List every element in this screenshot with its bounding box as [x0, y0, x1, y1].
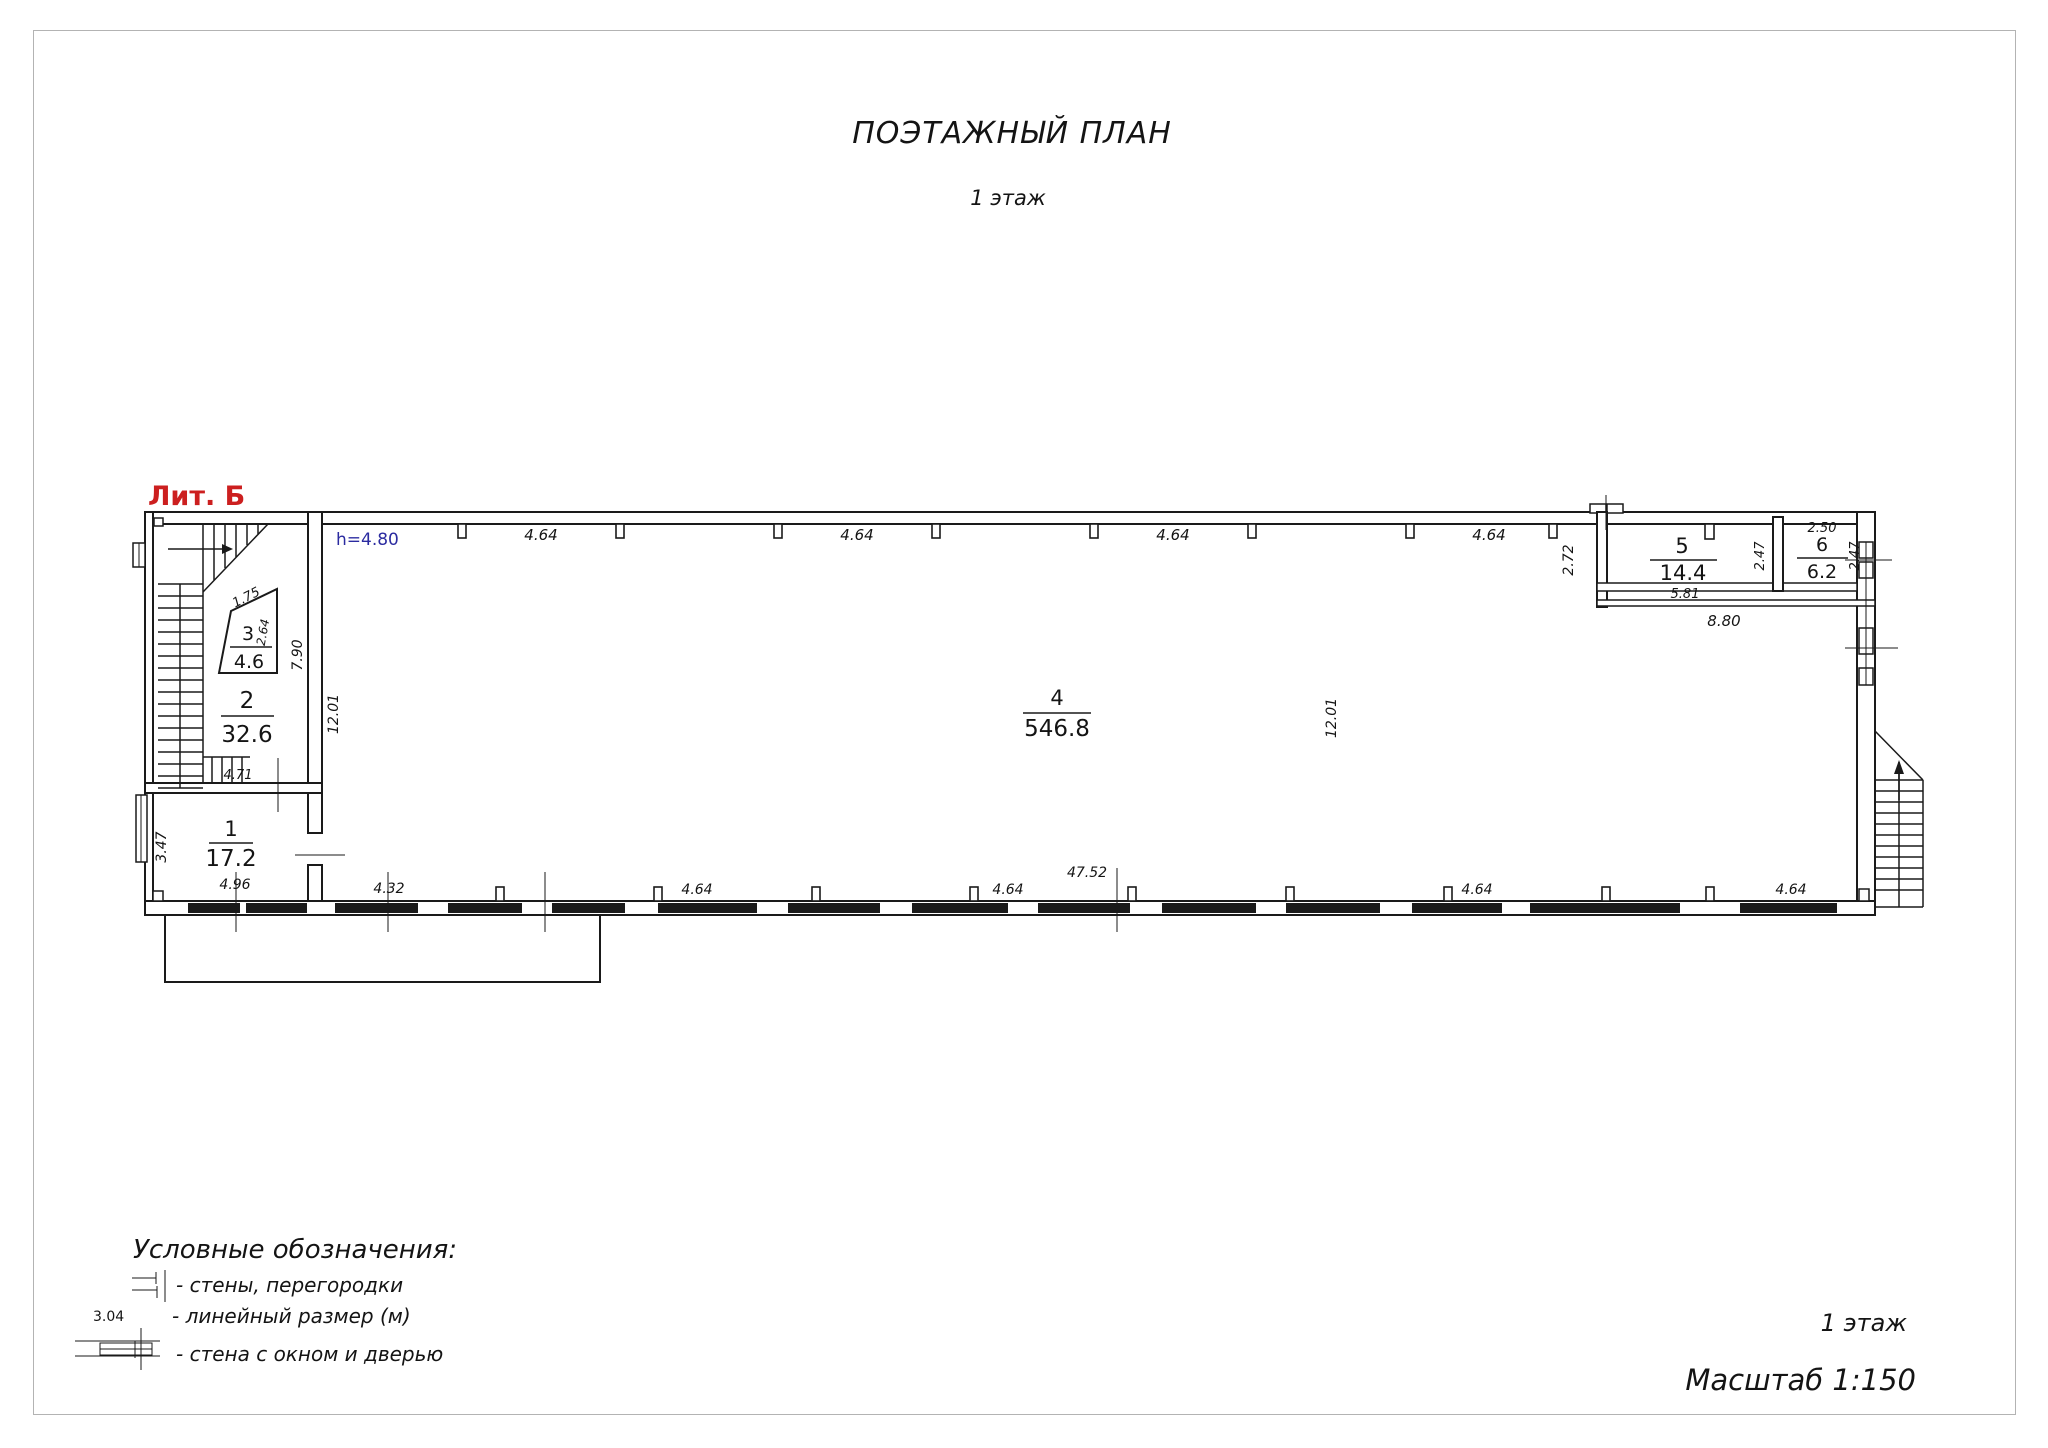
- dim-top-2: 4.64: [840, 526, 873, 544]
- ceiling-height-note: h=4.80: [336, 530, 399, 550]
- page-title: ПОЭТАЖНЫЙ ПЛАН: [852, 115, 1172, 151]
- room-5-area: 14.4: [1660, 561, 1707, 585]
- porch-outline: [165, 915, 600, 982]
- room-3-number: 3: [242, 623, 254, 645]
- stair-up-arrow: [222, 544, 233, 554]
- dim-annex-width: 8.80: [1707, 612, 1740, 630]
- footer-scale: Масштаб 1:150: [1685, 1363, 1916, 1397]
- page: { "page": { "title": "ПОЭТАЖНЫЙ ПЛАН", "…: [0, 0, 2048, 1448]
- dim-top-1: 4.64: [524, 526, 557, 544]
- wall-top-notch: [1607, 504, 1623, 513]
- room-1-area: 17.2: [205, 846, 256, 872]
- dim-room1-height: 3.47: [154, 831, 170, 862]
- wall-annex-hallside: [1597, 600, 1875, 606]
- liter-label: Лит. Б: [148, 481, 245, 512]
- room-2-area: 32.6: [221, 722, 272, 748]
- room-2-number: 2: [240, 688, 255, 714]
- dim-top-4: 4.64: [1472, 526, 1505, 544]
- dim-top-3: 4.64: [1156, 526, 1189, 544]
- dim-room2-width: 4.71: [224, 768, 253, 783]
- legend-size-sample: 3.04: [93, 1309, 124, 1325]
- wall-annex-roomside: [1597, 583, 1857, 591]
- dim-bottom-3: 4.64: [992, 882, 1023, 898]
- corner-notch: [1859, 889, 1869, 901]
- dim-room6-width: 2.50: [1808, 521, 1837, 536]
- dim-annex-left: 2.72: [1561, 544, 1577, 575]
- stair-up-arrow: [1894, 760, 1904, 774]
- dim-bottom-2: 4.64: [681, 882, 712, 898]
- page-subtitle: 1 этаж: [970, 186, 1046, 210]
- footer-floor: 1 этаж: [1821, 1309, 1908, 1337]
- top-piers: [458, 524, 1714, 539]
- dim-bottom-total: 47.52: [1067, 865, 1107, 881]
- floor-plan-drawing: ПОЭТАЖНЫЙ ПЛАН 1 этаж Лит. Б: [0, 0, 2048, 1448]
- dim-left-inner: 12.01: [326, 694, 342, 734]
- legend-symbol-window-door: [75, 1328, 160, 1370]
- room-1-number: 1: [224, 817, 237, 841]
- room-3-area: 4.6: [234, 651, 264, 673]
- bottom-piers: [496, 887, 1714, 901]
- dim-bottom-1: 4.32: [373, 881, 404, 897]
- legend-symbol-walls: [132, 1270, 165, 1302]
- legend-item-size: - линейный размер (м): [172, 1304, 411, 1328]
- room-6-number: 6: [1816, 534, 1828, 556]
- legend-title: Условные обозначения:: [133, 1235, 457, 1265]
- wall-top: [145, 512, 1875, 524]
- dim-room2-height: 7.90: [290, 639, 306, 670]
- building-walls: [145, 504, 1875, 915]
- dim-bottom-4: 4.64: [1461, 882, 1492, 898]
- dim-room5-height: 2.47: [1753, 541, 1768, 571]
- legend-item-walls: - стены, перегородки: [176, 1273, 403, 1297]
- dim-room5-width: 5.81: [1671, 587, 1700, 602]
- legend: Условные обозначения: - стены, перегород…: [75, 1235, 457, 1370]
- side-windows: [133, 518, 1873, 901]
- dim-hall-mid: 12.01: [1324, 698, 1340, 738]
- external-stair: [1875, 731, 1923, 907]
- dim-room6-height: 2.47: [1848, 541, 1863, 571]
- room-5-number: 5: [1675, 534, 1688, 558]
- room-4-area: 546.8: [1024, 716, 1090, 742]
- room-6-area: 6.2: [1807, 561, 1837, 583]
- corner-notch: [153, 891, 163, 901]
- wall-room5-room6: [1773, 517, 1783, 591]
- corner-marker: [154, 518, 163, 526]
- room-4-number: 4: [1050, 686, 1063, 710]
- dim-room1-width: 4.96: [219, 877, 250, 893]
- legend-item-window-door: - стена с окном и дверью: [176, 1342, 443, 1366]
- dim-bottom-5: 4.64: [1775, 882, 1806, 898]
